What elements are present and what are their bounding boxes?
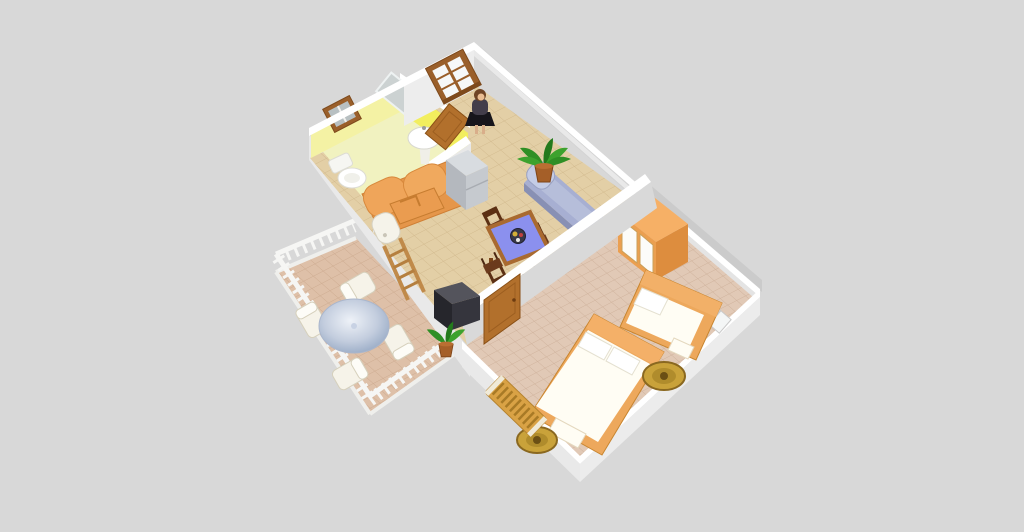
toilet-seat [344,173,360,183]
rug-medallion [660,372,668,380]
jacket [472,99,488,115]
table-center [351,323,357,329]
patio-table[interactable] [319,299,389,353]
rug-medallion [533,436,541,444]
pot-rim [535,163,553,169]
plate-of-food [511,229,526,244]
faucet [422,126,426,130]
leg [475,125,478,134]
face [478,94,485,101]
leg [482,125,485,134]
pot-rim [439,342,453,347]
round-rug[interactable] [643,362,685,390]
door-handle [512,298,516,302]
floor-plan-render [0,0,1024,532]
